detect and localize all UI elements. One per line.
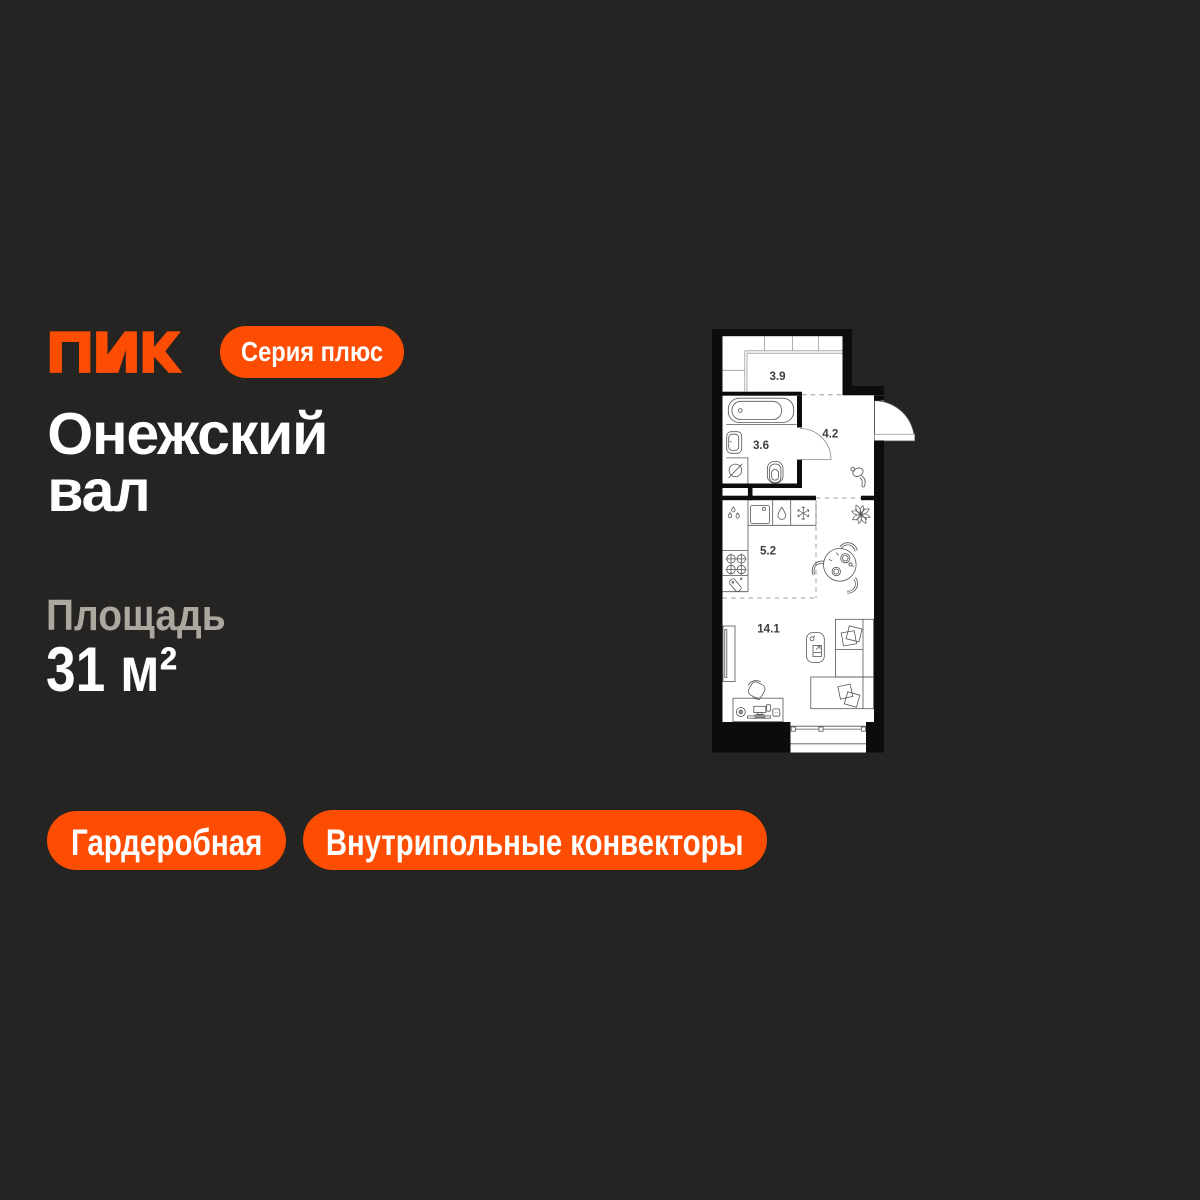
svg-text:3.6: 3.6 [753, 439, 770, 452]
svg-text:14.1: 14.1 [757, 623, 780, 636]
svg-text:5.2: 5.2 [760, 545, 776, 558]
svg-text:4.2: 4.2 [822, 428, 838, 441]
svg-text:3.9: 3.9 [769, 370, 786, 383]
